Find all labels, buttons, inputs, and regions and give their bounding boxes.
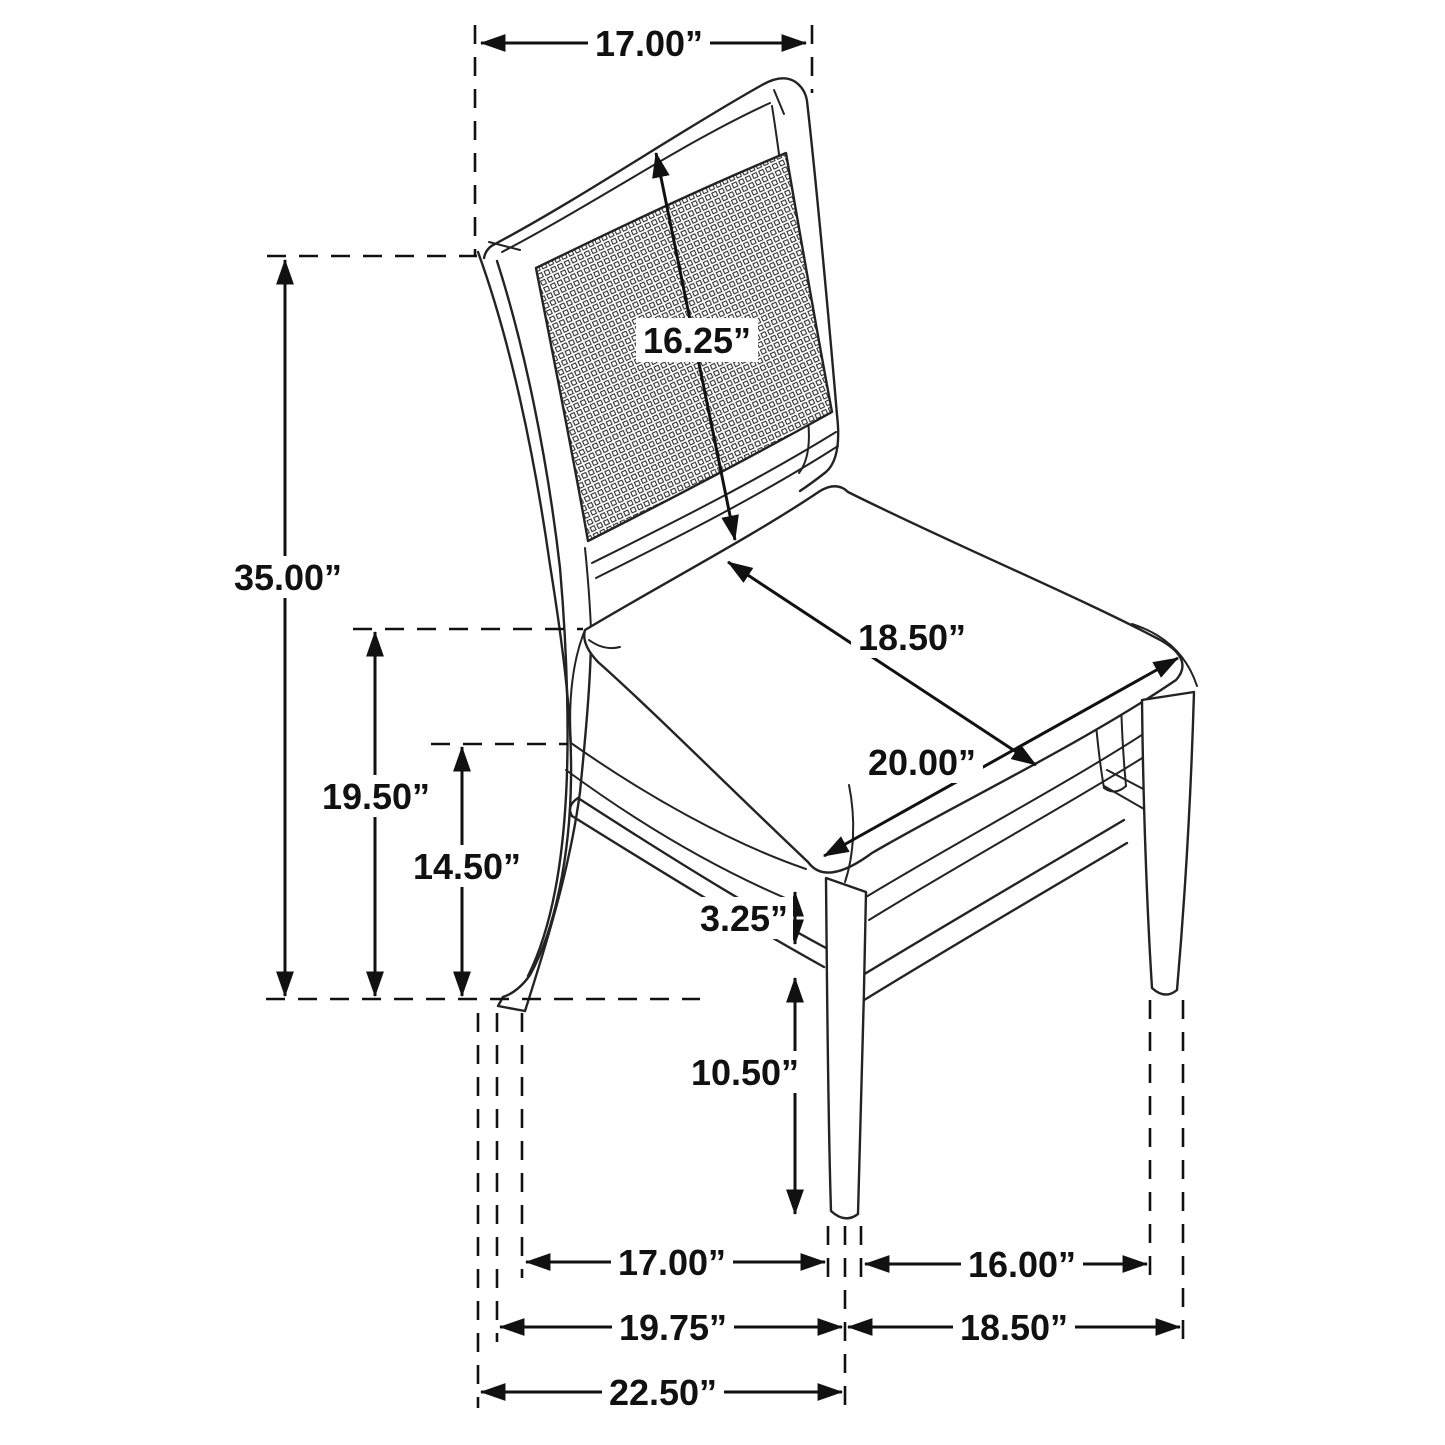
dim-label: 22.50”	[609, 1372, 717, 1413]
chair-dimension-drawing: 17.00” 35.00” 19.50” 14.50” 16.25”	[0, 0, 1445, 1445]
dim-apron-stretcher: 3.25”	[693, 892, 795, 944]
dim-label: 17.00”	[618, 1242, 726, 1283]
dim-label: 10.50”	[691, 1052, 799, 1093]
dim-label: 16.00”	[968, 1244, 1076, 1285]
dim-label: 19.50”	[322, 776, 430, 817]
dim-label: 17.00”	[595, 23, 703, 64]
dimension-diagram: 17.00” 35.00” 19.50” 14.50” 16.25”	[0, 0, 1445, 1445]
dim-label: 16.25”	[643, 320, 751, 361]
front-left-leg	[826, 878, 866, 1218]
dim-label: 35.00”	[234, 557, 342, 598]
dim-label: 18.50”	[960, 1307, 1068, 1348]
dim-label: 3.25”	[700, 898, 788, 939]
dim-label: 19.75”	[619, 1307, 727, 1348]
dim-label: 14.50”	[413, 846, 521, 887]
dim-label: 20.00”	[868, 742, 976, 783]
dim-label: 18.50”	[858, 617, 966, 658]
